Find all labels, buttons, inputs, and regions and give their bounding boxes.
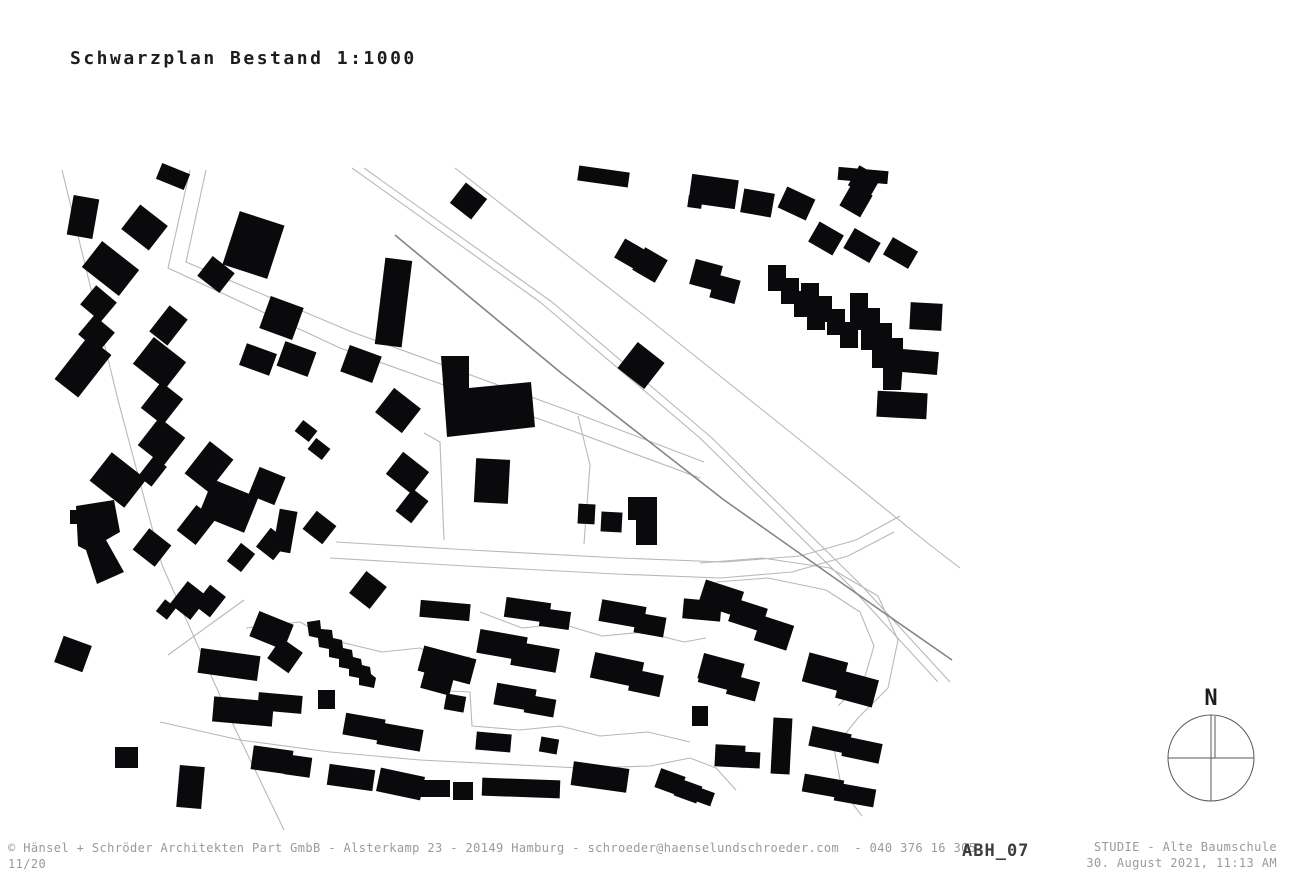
building xyxy=(740,751,761,768)
building xyxy=(176,765,205,809)
building xyxy=(386,452,429,494)
building xyxy=(272,509,297,553)
building xyxy=(222,211,284,279)
building xyxy=(475,732,511,753)
credit-line: © Hänsel + Schröder Architekten Part Gmb… xyxy=(8,841,976,855)
building xyxy=(375,258,412,348)
building xyxy=(420,780,450,797)
building xyxy=(841,736,882,763)
building xyxy=(90,452,147,507)
building xyxy=(778,187,816,221)
plan-sheet: Schwarzplan Bestand 1:1000 N © Hänsel + … xyxy=(0,0,1297,885)
building xyxy=(327,764,375,791)
building xyxy=(227,543,255,572)
building xyxy=(284,754,313,777)
building-footprints xyxy=(54,163,943,809)
north-compass: N xyxy=(1168,686,1254,801)
building xyxy=(444,693,466,712)
building xyxy=(259,296,304,340)
building xyxy=(617,342,664,389)
credit-block: © Hänsel + Schröder Architekten Part Gmb… xyxy=(8,840,976,872)
building xyxy=(539,737,559,755)
building xyxy=(876,391,927,420)
building xyxy=(482,778,561,799)
building xyxy=(318,690,335,709)
building xyxy=(628,669,664,697)
street-line xyxy=(330,532,894,578)
building xyxy=(141,382,183,425)
building xyxy=(843,228,880,263)
building xyxy=(419,600,470,621)
building xyxy=(600,511,622,532)
building xyxy=(571,761,630,793)
building xyxy=(687,195,703,209)
building xyxy=(539,608,571,630)
project-title: STUDIE - Alte Baumschule xyxy=(1086,839,1277,855)
sheet-code: ABH_07 xyxy=(962,841,1029,861)
building xyxy=(307,620,376,688)
building xyxy=(133,337,186,389)
building xyxy=(257,692,302,714)
building xyxy=(883,237,918,269)
building xyxy=(138,418,186,466)
building xyxy=(808,222,844,256)
building xyxy=(80,285,117,322)
page-number: 11/20 xyxy=(8,857,46,871)
sheet-meta: STUDIE - Alte Baumschule 30. August 2021… xyxy=(1086,839,1277,871)
building xyxy=(54,636,92,673)
street-line xyxy=(424,433,444,540)
building xyxy=(577,504,595,525)
building xyxy=(909,302,942,331)
building xyxy=(115,747,138,768)
building xyxy=(396,489,429,523)
building xyxy=(67,195,100,239)
building xyxy=(376,768,425,801)
building xyxy=(628,497,657,545)
building xyxy=(349,571,387,609)
building xyxy=(198,648,261,681)
building xyxy=(185,441,234,492)
building xyxy=(453,782,473,800)
building xyxy=(295,420,318,442)
building xyxy=(76,500,124,584)
building xyxy=(834,783,877,808)
site-plan-map: N xyxy=(0,0,1297,885)
building xyxy=(156,163,190,190)
building xyxy=(303,511,337,545)
rail-line xyxy=(395,235,952,660)
building xyxy=(277,341,317,377)
building xyxy=(474,458,510,504)
building xyxy=(692,706,708,726)
building xyxy=(308,438,331,460)
building xyxy=(375,388,421,433)
building xyxy=(133,528,172,567)
building xyxy=(239,343,277,376)
building xyxy=(740,188,775,217)
building xyxy=(771,718,793,775)
building xyxy=(510,641,559,673)
building xyxy=(524,695,557,718)
building xyxy=(577,166,630,188)
street-line xyxy=(430,690,690,742)
building xyxy=(633,613,666,638)
building xyxy=(726,674,760,701)
building xyxy=(376,722,423,751)
compass-north-label: N xyxy=(1204,686,1217,711)
building xyxy=(441,356,535,437)
building xyxy=(194,585,226,618)
building xyxy=(121,205,168,251)
sheet-datetime: 30. August 2021, 11:13 AM xyxy=(1086,855,1277,871)
